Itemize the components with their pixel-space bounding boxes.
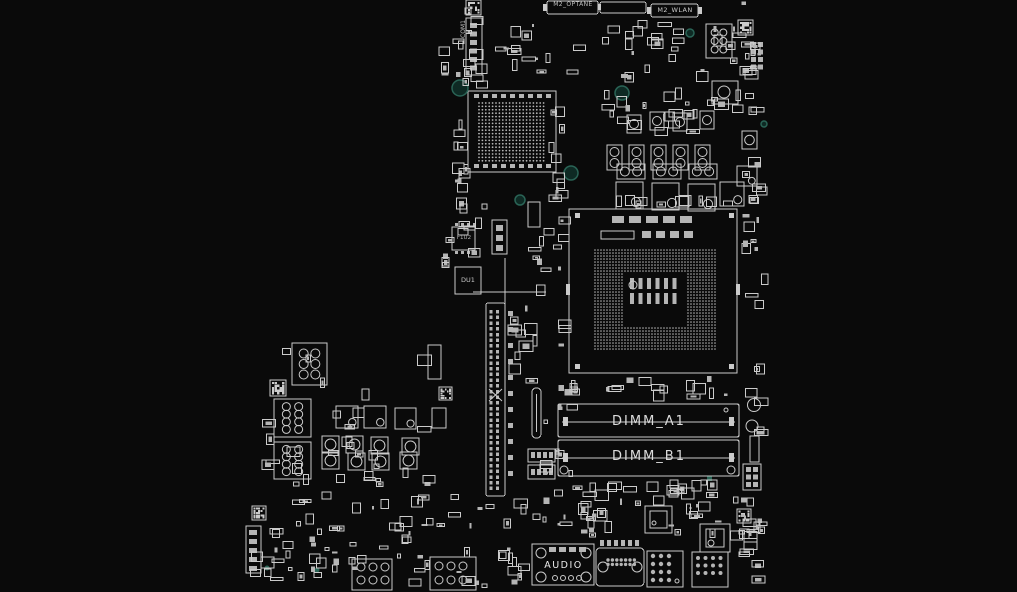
board-canvas[interactable] [0,0,1017,592]
boardview-stage: M2_OPTANE M2_WLAN COM1 DIMM_A1 DIMM_B1 A… [0,0,1017,592]
